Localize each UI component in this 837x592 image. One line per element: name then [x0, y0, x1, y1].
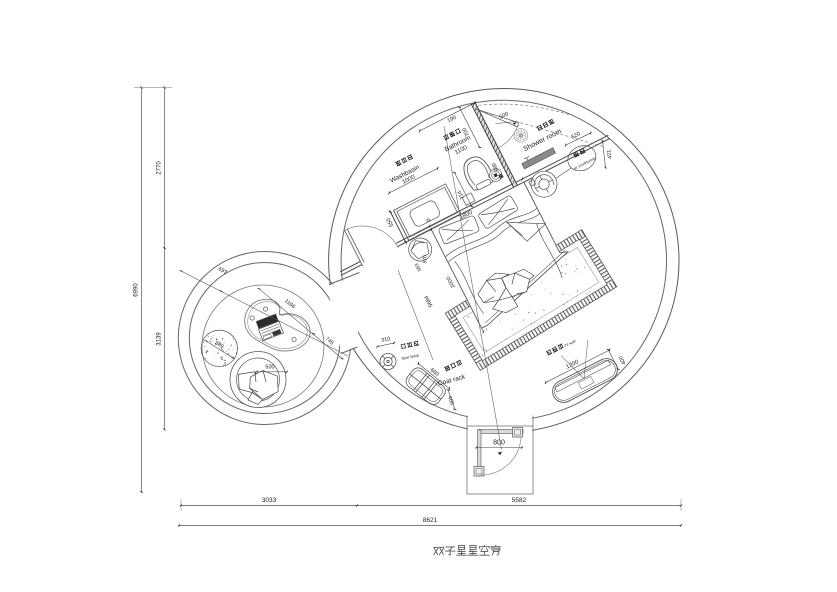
svg-text:2770: 2770 [157, 161, 163, 175]
svg-text:800: 800 [493, 440, 505, 447]
svg-text:500: 500 [265, 365, 274, 371]
svg-text:3033: 3033 [262, 497, 277, 504]
svg-text:6990: 6990 [134, 283, 140, 297]
svg-text:5582: 5582 [512, 497, 527, 504]
svg-text:570: 570 [422, 255, 428, 264]
svg-text:8621: 8621 [423, 517, 438, 524]
svg-text:3139: 3139 [157, 332, 163, 346]
